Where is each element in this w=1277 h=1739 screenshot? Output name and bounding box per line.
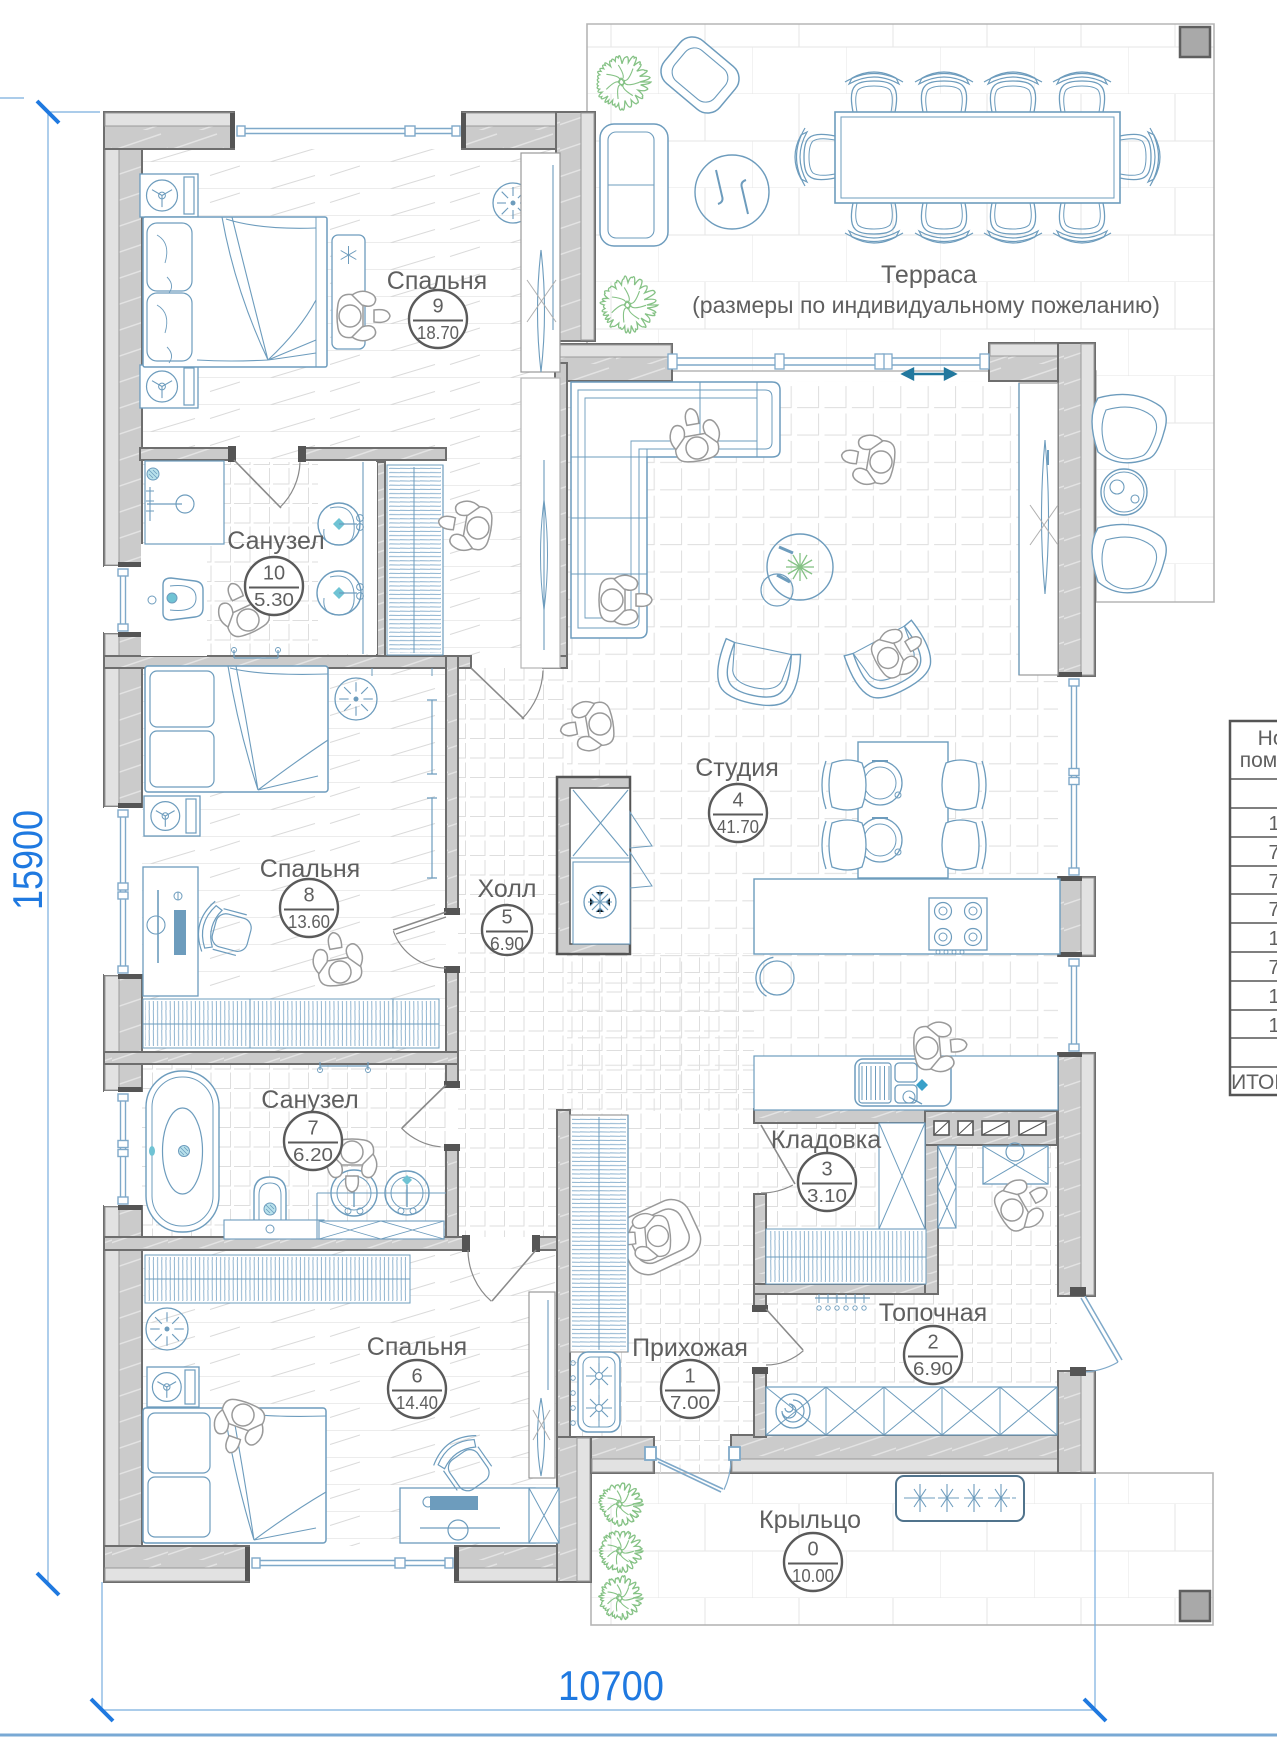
svg-text:3: 3 [821,1159,832,1181]
svg-text:1: 1 [1268,928,1277,950]
svg-text:Крыльцо: Крыльцо [759,1506,861,1534]
svg-text:(размеры по индивидуальному по: (размеры по индивидуальному пожеланию) [692,292,1160,318]
svg-text:18.70: 18.70 [417,323,459,343]
svg-text:Прихожая: Прихожая [632,1334,748,1362]
svg-text:5: 5 [501,907,512,929]
svg-text:6.90: 6.90 [490,934,524,954]
svg-text:1: 1 [684,1366,695,1388]
svg-text:Топочная: Топочная [879,1299,987,1327]
svg-text:5.30: 5.30 [254,590,294,610]
svg-text:7: 7 [1268,842,1277,864]
svg-text:7: 7 [1268,899,1277,921]
svg-text:помещения: помещения [1240,749,1277,772]
svg-text:10: 10 [263,563,285,585]
svg-text:Кладовка: Кладовка [771,1126,881,1154]
svg-text:0: 0 [807,1539,818,1561]
svg-text:Санузел: Санузел [227,527,324,555]
svg-text:15900: 15900 [4,810,51,910]
svg-text:2: 2 [927,1332,938,1354]
svg-text:6.90: 6.90 [913,1359,953,1379]
svg-text:7: 7 [1268,871,1277,893]
svg-text:Терраса: Терраса [881,261,977,289]
svg-text:ИТОГО: ИТОГО [1231,1071,1277,1094]
svg-text:8: 8 [303,885,314,907]
svg-text:Холл: Холл [478,875,537,903]
svg-text:1: 1 [1268,1015,1277,1037]
svg-text:10.00: 10.00 [792,1566,834,1586]
svg-text:13.60: 13.60 [288,912,330,932]
svg-text:1: 1 [1268,813,1277,835]
svg-text:6: 6 [411,1366,422,1388]
svg-text:41.70: 41.70 [717,817,759,837]
svg-text:7: 7 [307,1118,318,1140]
svg-text:Спальня: Спальня [367,1333,467,1361]
svg-text:3.10: 3.10 [807,1186,847,1206]
svg-text:Номер: Номер [1258,727,1277,750]
svg-text:Студия: Студия [695,754,779,782]
svg-text:9: 9 [432,296,443,318]
svg-text:14.40: 14.40 [396,1393,438,1413]
svg-text:10700: 10700 [558,1662,664,1709]
svg-text:7: 7 [1268,957,1277,979]
svg-text:7.00: 7.00 [670,1393,710,1413]
svg-text:1: 1 [1268,986,1277,1008]
svg-text:4: 4 [732,790,743,812]
svg-text:6.20: 6.20 [293,1145,333,1165]
svg-text:Санузел: Санузел [261,1086,358,1114]
